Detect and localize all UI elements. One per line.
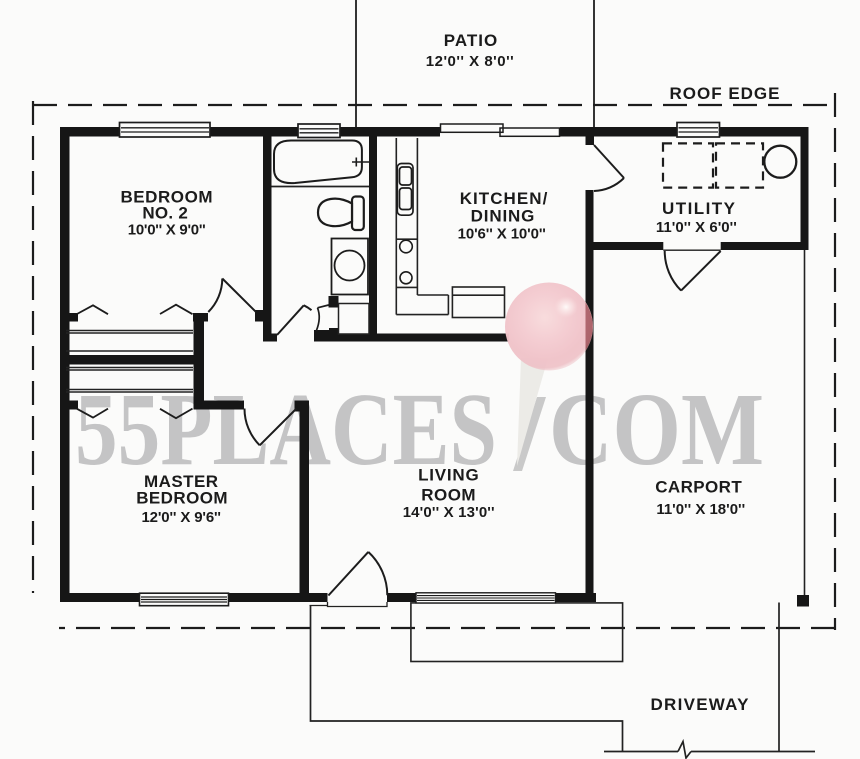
svg-text:UTILITY: UTILITY	[662, 199, 736, 218]
svg-text:CARPORT: CARPORT	[655, 478, 743, 497]
svg-text:10'6'' X 10'0'': 10'6'' X 10'0''	[458, 226, 547, 243]
svg-text:ROOM: ROOM	[421, 486, 476, 505]
svg-text:14'0'' X 13'0'': 14'0'' X 13'0''	[403, 504, 495, 521]
svg-text:12'0'' X 8'0'': 12'0'' X 8'0''	[426, 53, 514, 70]
svg-text:12'0'' X 9'6'': 12'0'' X 9'6''	[142, 509, 222, 526]
svg-text:ROOF EDGE: ROOF EDGE	[670, 84, 781, 103]
svg-text:LIVING: LIVING	[418, 465, 480, 484]
svg-text:10'0'' X 9'0'': 10'0'' X 9'0''	[128, 222, 207, 239]
svg-text:NO. 2: NO. 2	[142, 203, 189, 222]
svg-text:DRIVEWAY: DRIVEWAY	[651, 695, 750, 714]
svg-text:COM: COM	[549, 372, 764, 487]
svg-text:BEDROOM: BEDROOM	[136, 489, 228, 508]
svg-text:11'0'' X 6'0'': 11'0'' X 6'0''	[656, 219, 738, 236]
svg-text:KITCHEN/: KITCHEN/	[460, 189, 549, 208]
svg-text:DINING: DINING	[471, 206, 536, 225]
svg-text:PATIO: PATIO	[444, 31, 498, 50]
svg-text:11'0'' X 18'0'': 11'0'' X 18'0''	[656, 501, 745, 518]
